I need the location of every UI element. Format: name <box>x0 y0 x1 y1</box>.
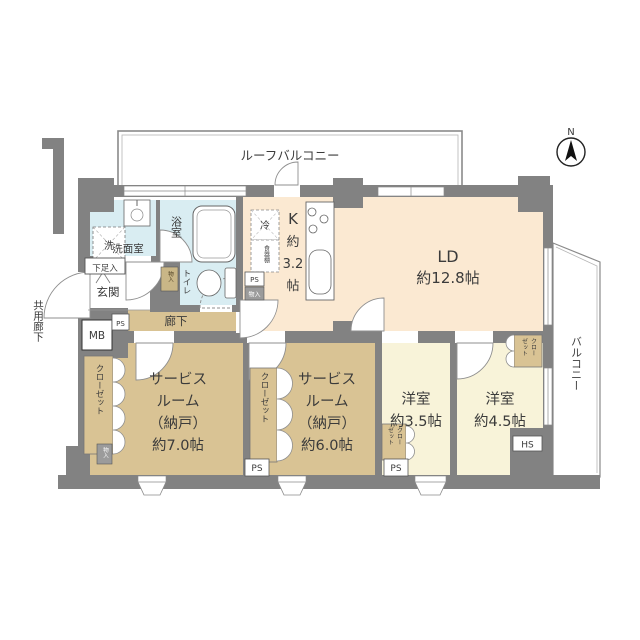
toilet-bowl-icon <box>197 270 221 296</box>
kitchen-label: K <box>288 210 299 228</box>
north-compass <box>557 138 585 166</box>
svg-text:ゼット: ゼット <box>387 426 394 445</box>
svg-text:約4.5帖: 約4.5帖 <box>474 413 526 430</box>
svg-text:3.2: 3.2 <box>283 257 304 272</box>
roof-balcony-label: ルーフバルコニー <box>240 148 339 163</box>
toilet-label: トイレ <box>181 269 191 295</box>
closet-western45 <box>514 335 542 367</box>
svg-text:約: 約 <box>286 235 299 250</box>
cupboard-label: 食器棚 <box>263 244 270 264</box>
outswing-window-icon <box>138 482 166 495</box>
north-label: N <box>567 127 574 138</box>
ps-label: PS <box>390 464 401 474</box>
svg-text:約6.0帖: 約6.0帖 <box>301 437 353 454</box>
ps-label: PS <box>250 276 259 284</box>
kitchen-sink-icon <box>309 250 331 294</box>
storage-label: 物入 <box>167 270 174 283</box>
ld-label: LD <box>437 247 458 266</box>
service6-label: サービス <box>298 371 356 388</box>
closet-label-small: クロー <box>396 427 403 445</box>
bath-label: 浴室 <box>170 216 183 238</box>
svg-text:帖: 帖 <box>286 279 299 294</box>
storage-label: 物入 <box>248 291 260 299</box>
svg-text:ゼット: ゼット <box>521 337 528 356</box>
service7-label: サービス <box>149 371 207 388</box>
closet-label-small: クロー <box>530 338 537 356</box>
svg-text:（納戸）: （納戸） <box>149 415 207 432</box>
western35-label: 洋室 <box>402 391 431 408</box>
shared-corridor-label: 共用廊下 <box>32 300 44 343</box>
bifold-door-icon <box>277 368 293 461</box>
svg-text:ルーム: ルーム <box>156 394 199 410</box>
hallway-label: 廊下 <box>165 314 188 328</box>
western45-label: 洋室 <box>486 391 515 408</box>
closet-label: クローゼット <box>259 372 269 423</box>
balcony-label: バルコニー <box>570 336 583 391</box>
floor-plan: ルーフバルコニー N LD 約12.8帖 K 約 3.2 帖 サービス ルーム … <box>0 0 640 640</box>
entrance-door-icon <box>44 272 90 318</box>
fridge-label: 冷 <box>260 219 270 232</box>
svg-text:約7.0帖: 約7.0帖 <box>152 437 204 454</box>
outswing-window-icon <box>278 482 306 495</box>
floor-plan-page: ルーフバルコニー N LD 約12.8帖 K 約 3.2 帖 サービス ルーム … <box>0 0 640 640</box>
ld-size-label: 約12.8帖 <box>416 269 479 287</box>
entrance-label: 玄関 <box>97 285 120 299</box>
svg-text:（納戸）: （納戸） <box>298 415 356 432</box>
mb-label: MB <box>89 330 105 342</box>
washer-label: 洗 <box>104 240 114 252</box>
hs-label: HS <box>521 441 534 451</box>
outswing-window-icon <box>415 482 446 495</box>
ps-label: PS <box>251 464 262 474</box>
shoe-box-label: 下足入 <box>92 264 118 274</box>
ps-label: PS <box>116 320 125 328</box>
svg-text:ルーム: ルーム <box>305 394 348 410</box>
washroom-label: 洗面室 <box>112 242 144 255</box>
closet-label: クローゼット <box>94 364 104 415</box>
storage-label: 物入 <box>102 446 109 459</box>
toilet-tank-icon <box>225 268 236 298</box>
bathtub-icon <box>193 206 235 262</box>
